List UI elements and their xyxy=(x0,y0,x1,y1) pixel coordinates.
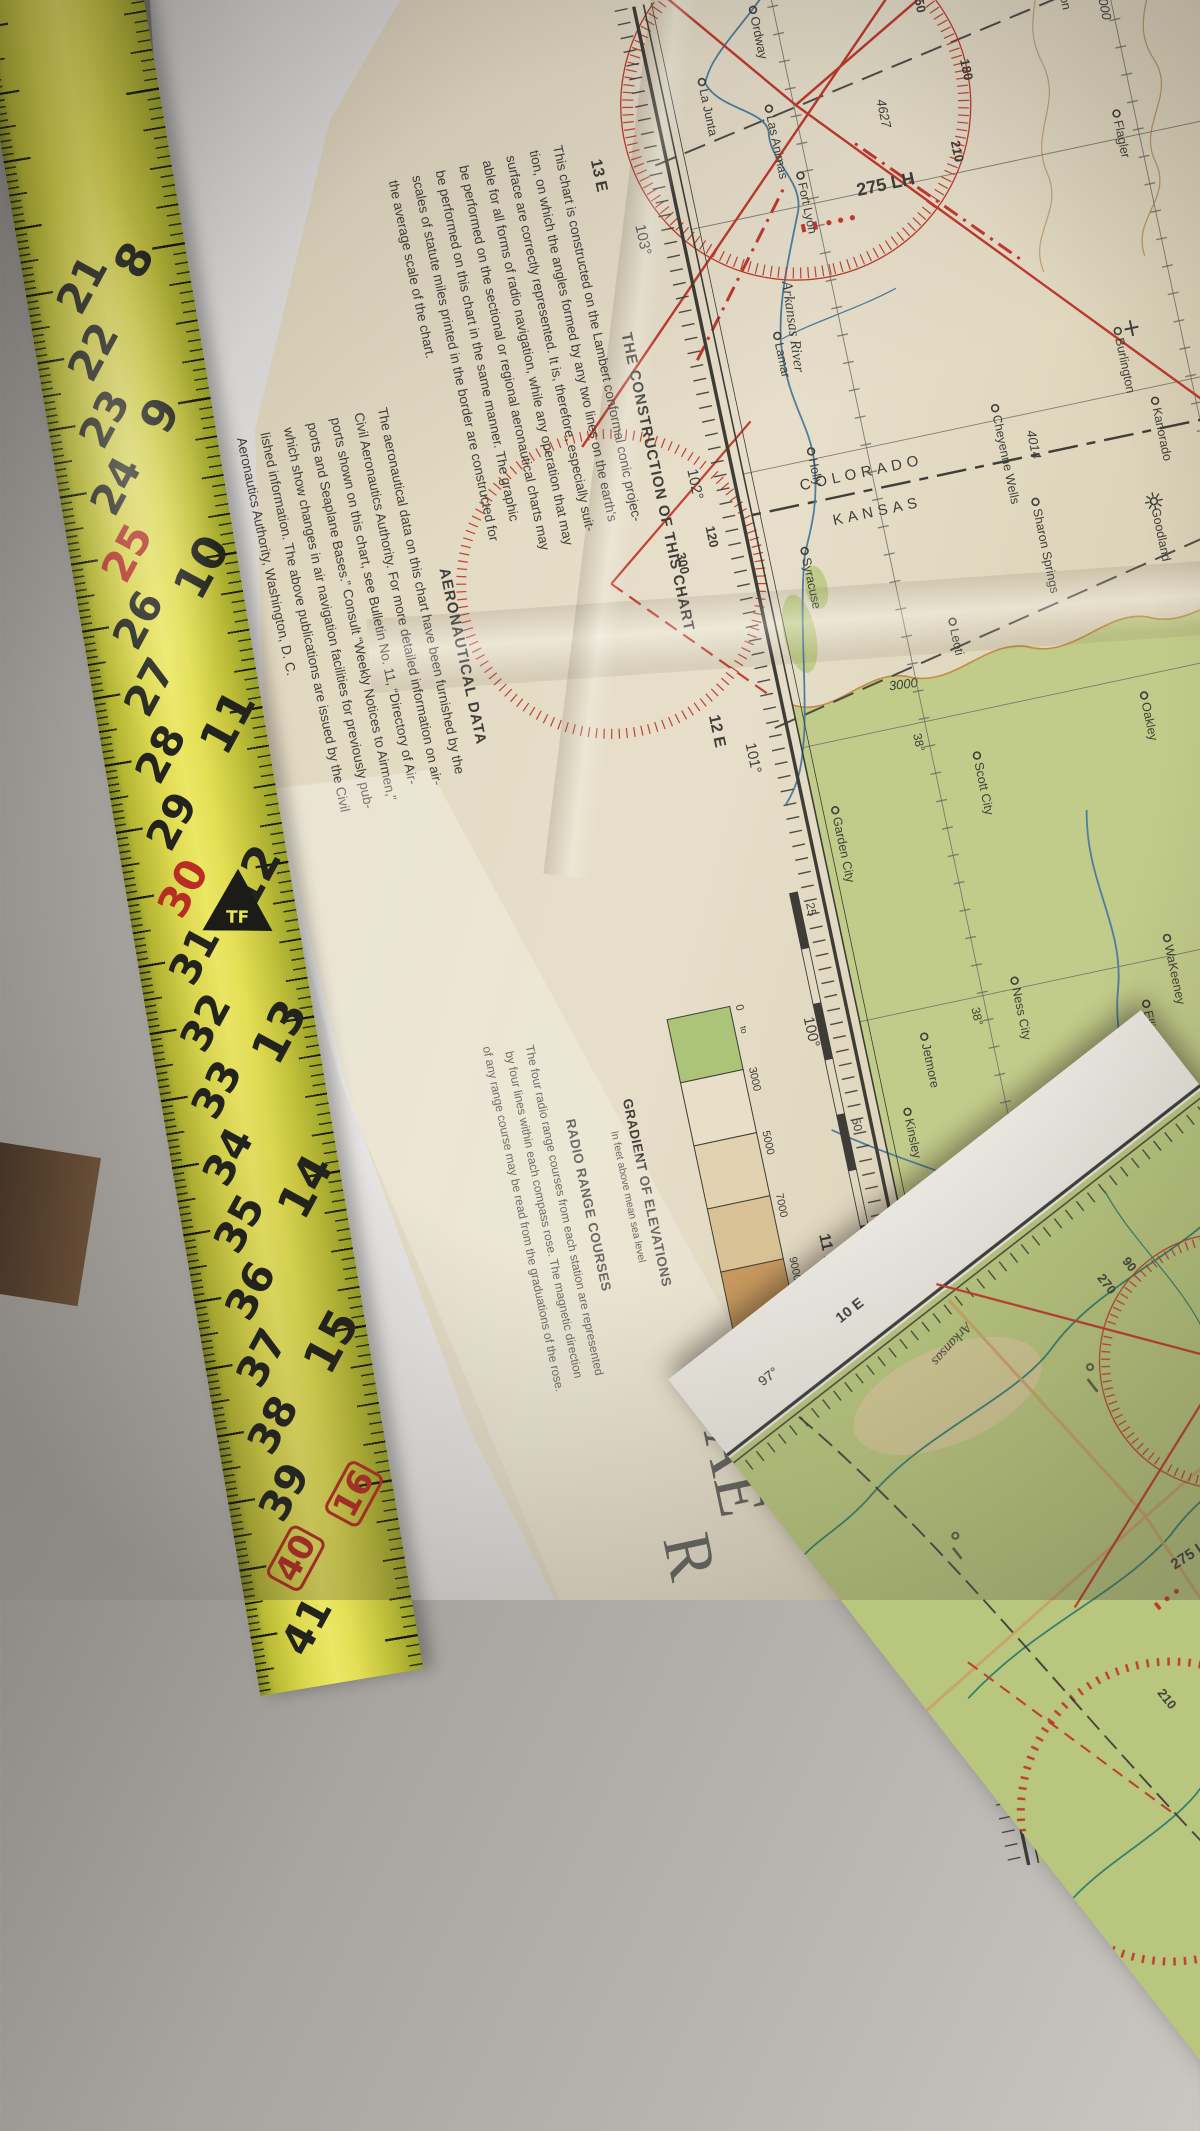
tape-cm-number: 24 xyxy=(84,450,149,521)
town-label: Ordway xyxy=(748,15,771,61)
tape-cm-number: 25 xyxy=(95,517,160,588)
meridian-label: 101° xyxy=(742,741,765,775)
radio-station-icon xyxy=(1156,494,1160,498)
radio-range-label: 275 LH xyxy=(855,168,917,200)
meridian-label: 103° xyxy=(631,223,654,257)
legend-elevation-label: 5000 xyxy=(759,1130,776,1156)
town-label: Limon xyxy=(1053,0,1074,11)
tape-cm-number: 37 xyxy=(230,1322,295,1393)
radio-station-icon xyxy=(1145,502,1149,503)
tape-cm-number: 28 xyxy=(129,719,194,790)
tape-inch-number: 10 xyxy=(166,528,237,606)
legend-band xyxy=(694,1133,770,1209)
radio-station-icon xyxy=(1152,492,1153,496)
tape-cm-number: 22 xyxy=(61,316,126,387)
tape-cm-number: 30 xyxy=(151,853,216,924)
town-marker xyxy=(765,105,773,113)
legend-elevation-label: to xyxy=(738,1025,749,1034)
town-marker xyxy=(1150,497,1158,505)
tape-cm-number: 34 xyxy=(196,1121,261,1192)
tape-brand-logo: TF xyxy=(202,868,273,931)
compass-bearing-number: 120 xyxy=(703,525,722,549)
construction-paragraph: This chart is constructed on the Lambert… xyxy=(386,144,647,567)
legend-elevation-label: 3000 xyxy=(746,1066,763,1092)
tape-cm-number: 29 xyxy=(140,786,205,857)
tape-inch-number: 13 xyxy=(244,993,315,1071)
town-label: Goodland xyxy=(1149,507,1174,563)
tape-cm-number: 36 xyxy=(218,1255,283,1326)
tape-cm-number: 39 xyxy=(252,1456,317,1527)
town-label: Sharon Springs xyxy=(1030,507,1062,594)
town-marker xyxy=(1151,397,1159,405)
tape-cm-number: 35 xyxy=(207,1188,272,1259)
spot-elevation: 4627 xyxy=(874,98,895,130)
town-marker xyxy=(949,618,957,626)
town-label: Kanorado xyxy=(1150,406,1175,462)
compass-bearing-number: 180 xyxy=(957,57,976,81)
scale-number: 50 xyxy=(849,1117,866,1133)
tape-inch-number: 9 xyxy=(132,390,188,440)
town-marker xyxy=(807,447,815,455)
tape-cm-number: 27 xyxy=(117,652,182,723)
town-marker xyxy=(773,332,781,340)
town-label: La Junta xyxy=(697,87,721,137)
legend-band xyxy=(681,1070,757,1146)
tape-inch-number: 15 xyxy=(295,1302,366,1380)
legend-elevation-label: 0 xyxy=(733,1003,746,1011)
tape-cm-number: 41 xyxy=(274,1591,339,1662)
town-marker xyxy=(796,172,804,180)
tape-cm-number: 21 xyxy=(50,249,115,320)
tape-inch-number: 8 xyxy=(106,235,162,285)
legend-band xyxy=(667,1006,743,1082)
tape-cm-number: 38 xyxy=(241,1389,306,1460)
tape-cm-number: 31 xyxy=(162,920,227,991)
town-marker xyxy=(991,404,999,412)
town-marker xyxy=(1031,498,1039,506)
compass-bearing-number: 210 xyxy=(948,139,967,163)
tape-cm-number: 40 xyxy=(264,1523,327,1594)
dark-object-edge xyxy=(0,1140,101,1307)
town-marker xyxy=(1112,109,1120,117)
tape-cm-number: 32 xyxy=(173,987,238,1058)
radio-station-icon xyxy=(1146,496,1150,500)
scale-number: 25 xyxy=(803,901,820,917)
corner-letter-r: R xyxy=(648,1526,732,1587)
tape-inch-number: 12 xyxy=(218,838,289,916)
town-label: Flagler xyxy=(1111,119,1133,159)
compass-bearing-number: 300 xyxy=(673,551,692,575)
airport-icon xyxy=(1125,327,1139,330)
radio-station-icon xyxy=(1158,499,1162,500)
tape-cm-number: 26 xyxy=(106,585,171,656)
isogonic-label: 13 E xyxy=(587,158,611,194)
tape-inch-number: 14 xyxy=(270,1147,341,1225)
compass-bearing-number: 150 xyxy=(910,0,929,14)
town-marker xyxy=(1114,327,1122,335)
spot-elevation: 4014 xyxy=(1024,429,1045,460)
legend-band xyxy=(707,1196,783,1272)
tape-cm-number: 23 xyxy=(72,383,137,454)
isogonic-label: 12 E xyxy=(705,713,729,749)
legend-elevation-label: 7000 xyxy=(773,1192,790,1218)
tape-inch-number: 11 xyxy=(192,683,263,761)
tape-cm-number: 33 xyxy=(185,1054,250,1125)
town-label: Burlington xyxy=(1112,336,1137,394)
town-label: Leoti xyxy=(947,627,966,656)
spot-elevation: ·6000 xyxy=(1093,0,1115,22)
tape-inch-number: 16 xyxy=(322,1458,385,1529)
town-marker xyxy=(698,78,706,86)
